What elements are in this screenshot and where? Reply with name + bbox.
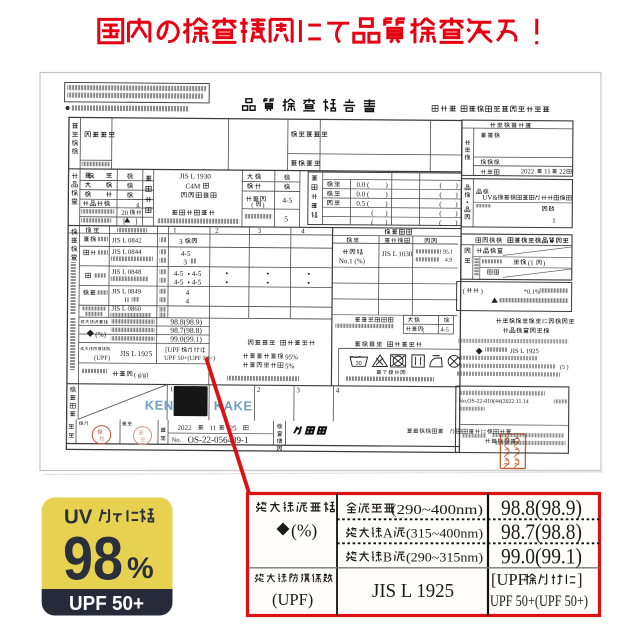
svg-text:4-5: 4-5 xyxy=(192,270,202,278)
svg-text:(%): (%) xyxy=(95,331,106,339)
svg-text:A: A xyxy=(383,526,393,541)
svg-text:4: 4 xyxy=(186,297,190,305)
svg-text:UPF 50+: UPF 50+ xyxy=(69,593,144,615)
svg-text:%: % xyxy=(127,552,154,585)
svg-text:(UPF): (UPF) xyxy=(272,590,313,609)
svg-text:(315~400nm): (315~400nm) xyxy=(406,526,483,541)
svg-text:): ) xyxy=(481,288,483,295)
svg-text:[UPF: [UPF xyxy=(491,570,527,589)
svg-text:95%: 95% xyxy=(285,353,298,361)
svg-text:JIS L 0849: JIS L 0849 xyxy=(112,288,142,295)
svg-text:( g/g): ( g/g) xyxy=(134,372,149,379)
svg-text:11: 11 xyxy=(544,169,551,176)
svg-text:(%): (%) xyxy=(291,521,317,541)
svg-text:98.7(98.8): 98.7(98.8) xyxy=(501,519,582,544)
svg-text:JIS L 1930: JIS L 1930 xyxy=(180,172,212,180)
svg-text:KEN: KEN xyxy=(145,398,174,413)
svg-text:22: 22 xyxy=(559,169,566,176)
svg-text:JIS L 0842: JIS L 0842 xyxy=(112,237,142,244)
svg-text:2: 2 xyxy=(257,386,261,394)
svg-text:No.1 (%): No.1 (%) xyxy=(339,257,366,265)
svg-text:4-5: 4-5 xyxy=(174,270,184,278)
svg-text:JIS L 0860: JIS L 0860 xyxy=(111,306,141,313)
svg-text:*0.1%: *0.1% xyxy=(524,289,541,296)
svg-text:0.5 (: 0.5 ( xyxy=(356,200,370,208)
svg-text:3: 3 xyxy=(258,227,262,235)
svg-text:0.0 (: 0.0 ( xyxy=(356,190,370,198)
svg-text:98: 98 xyxy=(63,525,123,593)
svg-text:95.1: 95.1 xyxy=(443,249,453,255)
svg-text:4-5: 4-5 xyxy=(282,196,292,205)
svg-text:No.OS-22-010(44(2022.11.14: No.OS-22-010(44(2022.11.14 xyxy=(459,398,529,406)
svg-text:JIS L 1925: JIS L 1925 xyxy=(372,580,454,602)
svg-text:4.9: 4.9 xyxy=(445,257,452,263)
svg-text:2: 2 xyxy=(215,227,219,235)
svg-text:II: II xyxy=(125,297,130,304)
svg-text:2022: 2022 xyxy=(178,424,193,432)
svg-text:UPF 50+(UPF 50+): UPF 50+(UPF 50+) xyxy=(490,593,588,610)
svg-text:11: 11 xyxy=(210,424,217,432)
svg-text:JIS L 0848: JIS L 0848 xyxy=(112,269,142,276)
svg-text:[UPF: [UPF xyxy=(165,347,180,354)
svg-text:3: 3 xyxy=(179,238,183,246)
svg-text:]: ] xyxy=(135,218,137,226)
svg-text:JIS L 1030: JIS L 1030 xyxy=(382,250,413,258)
svg-text:5%: 5% xyxy=(285,362,295,370)
svg-text:4: 4 xyxy=(186,289,190,297)
svg-text:4-5: 4-5 xyxy=(440,326,449,333)
svg-text:(1: (1 xyxy=(528,259,534,267)
svg-text:0.0 (: 0.0 ( xyxy=(356,181,370,189)
svg-text:5: 5 xyxy=(284,214,288,223)
svg-text:98.8(98.9): 98.8(98.9) xyxy=(501,495,582,520)
svg-text:4-5: 4-5 xyxy=(181,250,191,258)
svg-text:JIS L 1925: JIS L 1925 xyxy=(510,348,539,355)
svg-text:JIS L 0844: JIS L 0844 xyxy=(112,249,142,256)
svg-text:No.: No. xyxy=(171,437,181,444)
svg-text:1: 1 xyxy=(552,217,556,225)
svg-text:(290~315nm): (290~315nm) xyxy=(406,550,483,565)
svg-text:]: ] xyxy=(202,347,204,354)
svg-text:4-5: 4-5 xyxy=(192,278,202,286)
svg-text:C4M: C4M xyxy=(185,182,200,190)
svg-text:4-5: 4-5 xyxy=(174,278,184,286)
svg-text:): ) xyxy=(262,202,264,209)
svg-text:UV&: UV& xyxy=(482,194,498,202)
svg-text:2022: 2022 xyxy=(521,168,535,175)
svg-text:3: 3 xyxy=(183,258,187,266)
svg-text:(UPF): (UPF) xyxy=(94,355,110,362)
svg-text:99.0(99.1): 99.0(99.1) xyxy=(501,544,582,569)
svg-text:(: ( xyxy=(422,327,424,334)
svg-text:30: 30 xyxy=(356,361,362,367)
svg-text:4: 4 xyxy=(301,227,305,235)
svg-text:1: 1 xyxy=(170,385,174,393)
svg-text:JIS L 1925: JIS L 1925 xyxy=(120,349,153,358)
svg-text:B: B xyxy=(383,550,392,565)
svg-text:(5 ): (5 ) xyxy=(560,364,569,371)
svg-text:1: 1 xyxy=(173,226,177,234)
svg-text:(290~400nm): (290~400nm) xyxy=(391,502,483,517)
svg-text:3: 3 xyxy=(296,386,300,394)
svg-text:4: 4 xyxy=(336,387,340,395)
svg-text:20: 20 xyxy=(121,210,128,217)
svg-text:99.0(99.1): 99.0(99.1) xyxy=(170,334,202,343)
svg-text:(: ( xyxy=(251,202,253,209)
svg-text:OS-22-056489-1: OS-22-056489-1 xyxy=(187,434,248,444)
svg-text:]: ] xyxy=(577,570,583,589)
